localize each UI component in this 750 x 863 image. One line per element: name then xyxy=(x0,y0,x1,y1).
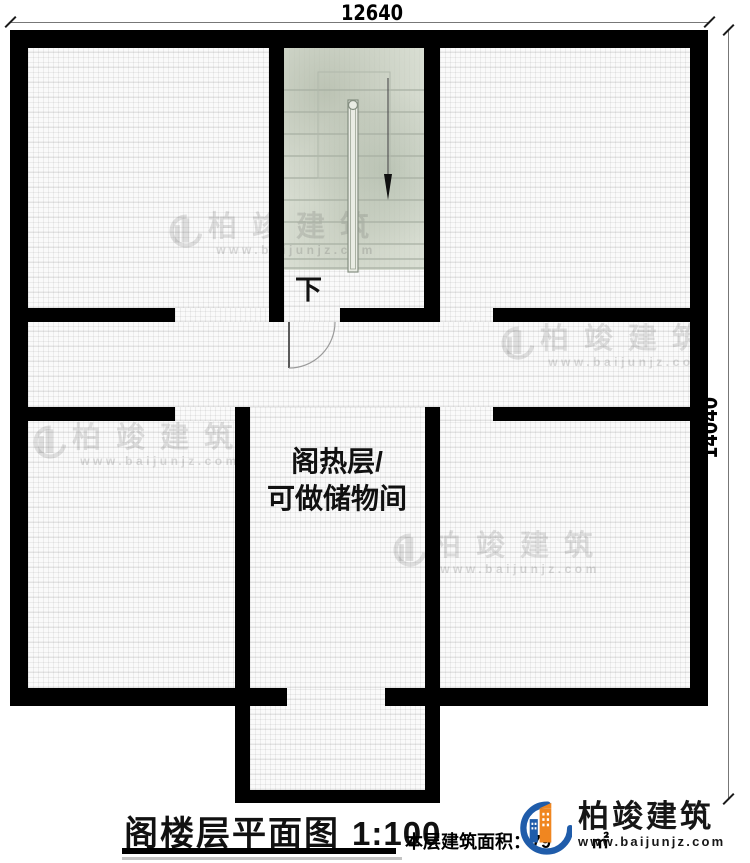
title-underline xyxy=(122,848,396,854)
opening-top-right-room xyxy=(440,308,493,322)
hall-top-wall-c xyxy=(493,308,690,322)
central-room-label-line1: 阁热层/ xyxy=(237,440,437,480)
company-logo-icon xyxy=(518,800,572,858)
room-top-right xyxy=(440,48,690,308)
company-logo-url: www.baijunjz.com xyxy=(578,834,725,849)
stair-door xyxy=(284,308,344,374)
stairwell-wall-left xyxy=(269,48,284,322)
floor-plan-canvas: 柏竣建筑 www.baijunjz.com 柏竣建筑 www.baijunjz.… xyxy=(0,0,750,863)
stair-down-label: 下 xyxy=(295,268,322,307)
opening-bottom-left-room xyxy=(175,407,235,421)
central-room-label-line2: 可做储物间 xyxy=(237,477,437,517)
protrusion-wall-bottom xyxy=(235,790,440,803)
stair-down-arrow-icon xyxy=(384,78,392,200)
stair-newel xyxy=(349,101,358,110)
outer-wall-right xyxy=(690,30,708,706)
dimension-line-right xyxy=(728,30,729,800)
opening-top-left-room xyxy=(175,308,269,322)
stair-rail xyxy=(348,100,358,272)
title-underline-shadow xyxy=(122,857,402,860)
outer-wall-top xyxy=(10,30,708,48)
hall-bottom-wall-b xyxy=(493,407,690,421)
opening-bottom-right-room xyxy=(440,407,493,421)
hall-bottom-wall-a xyxy=(28,407,175,421)
company-logo-brand: 柏竣建筑 xyxy=(578,800,725,834)
company-logo: 柏竣建筑 www.baijunjz.com xyxy=(518,800,725,858)
room-bottom-right xyxy=(440,421,690,688)
outer-wall-left xyxy=(10,30,28,706)
hall-top-wall-a xyxy=(28,308,175,322)
room-bottom-left xyxy=(28,421,235,688)
dimension-right-label: 14040 xyxy=(698,381,722,475)
door-swing-arc xyxy=(289,322,335,368)
room-top-left xyxy=(28,48,269,308)
floor-area-label: 本层建筑面积： xyxy=(405,832,531,852)
hallway xyxy=(28,322,690,407)
dimension-top-label: 12640 xyxy=(336,1,407,25)
stairwell-wall-right xyxy=(424,48,440,322)
